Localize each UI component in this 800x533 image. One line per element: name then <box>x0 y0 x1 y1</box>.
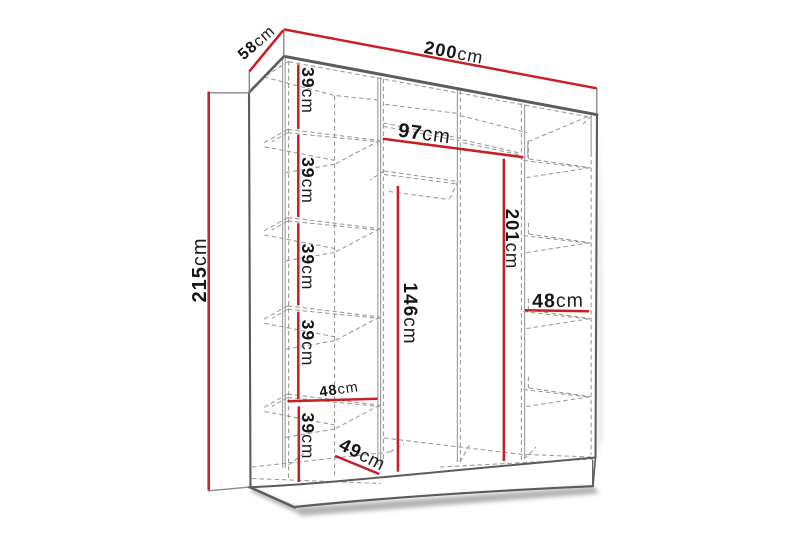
svg-text:48cm: 48cm <box>532 290 584 313</box>
svg-text:39cm: 39cm <box>298 244 318 291</box>
svg-text:39cm: 39cm <box>298 67 318 114</box>
svg-text:39cm: 39cm <box>298 157 318 204</box>
svg-text:39cm: 39cm <box>298 320 318 367</box>
svg-text:201cm: 201cm <box>502 209 523 270</box>
svg-text:39cm: 39cm <box>298 413 318 460</box>
svg-text:215cm: 215cm <box>189 237 211 302</box>
svg-text:146cm: 146cm <box>399 282 420 344</box>
